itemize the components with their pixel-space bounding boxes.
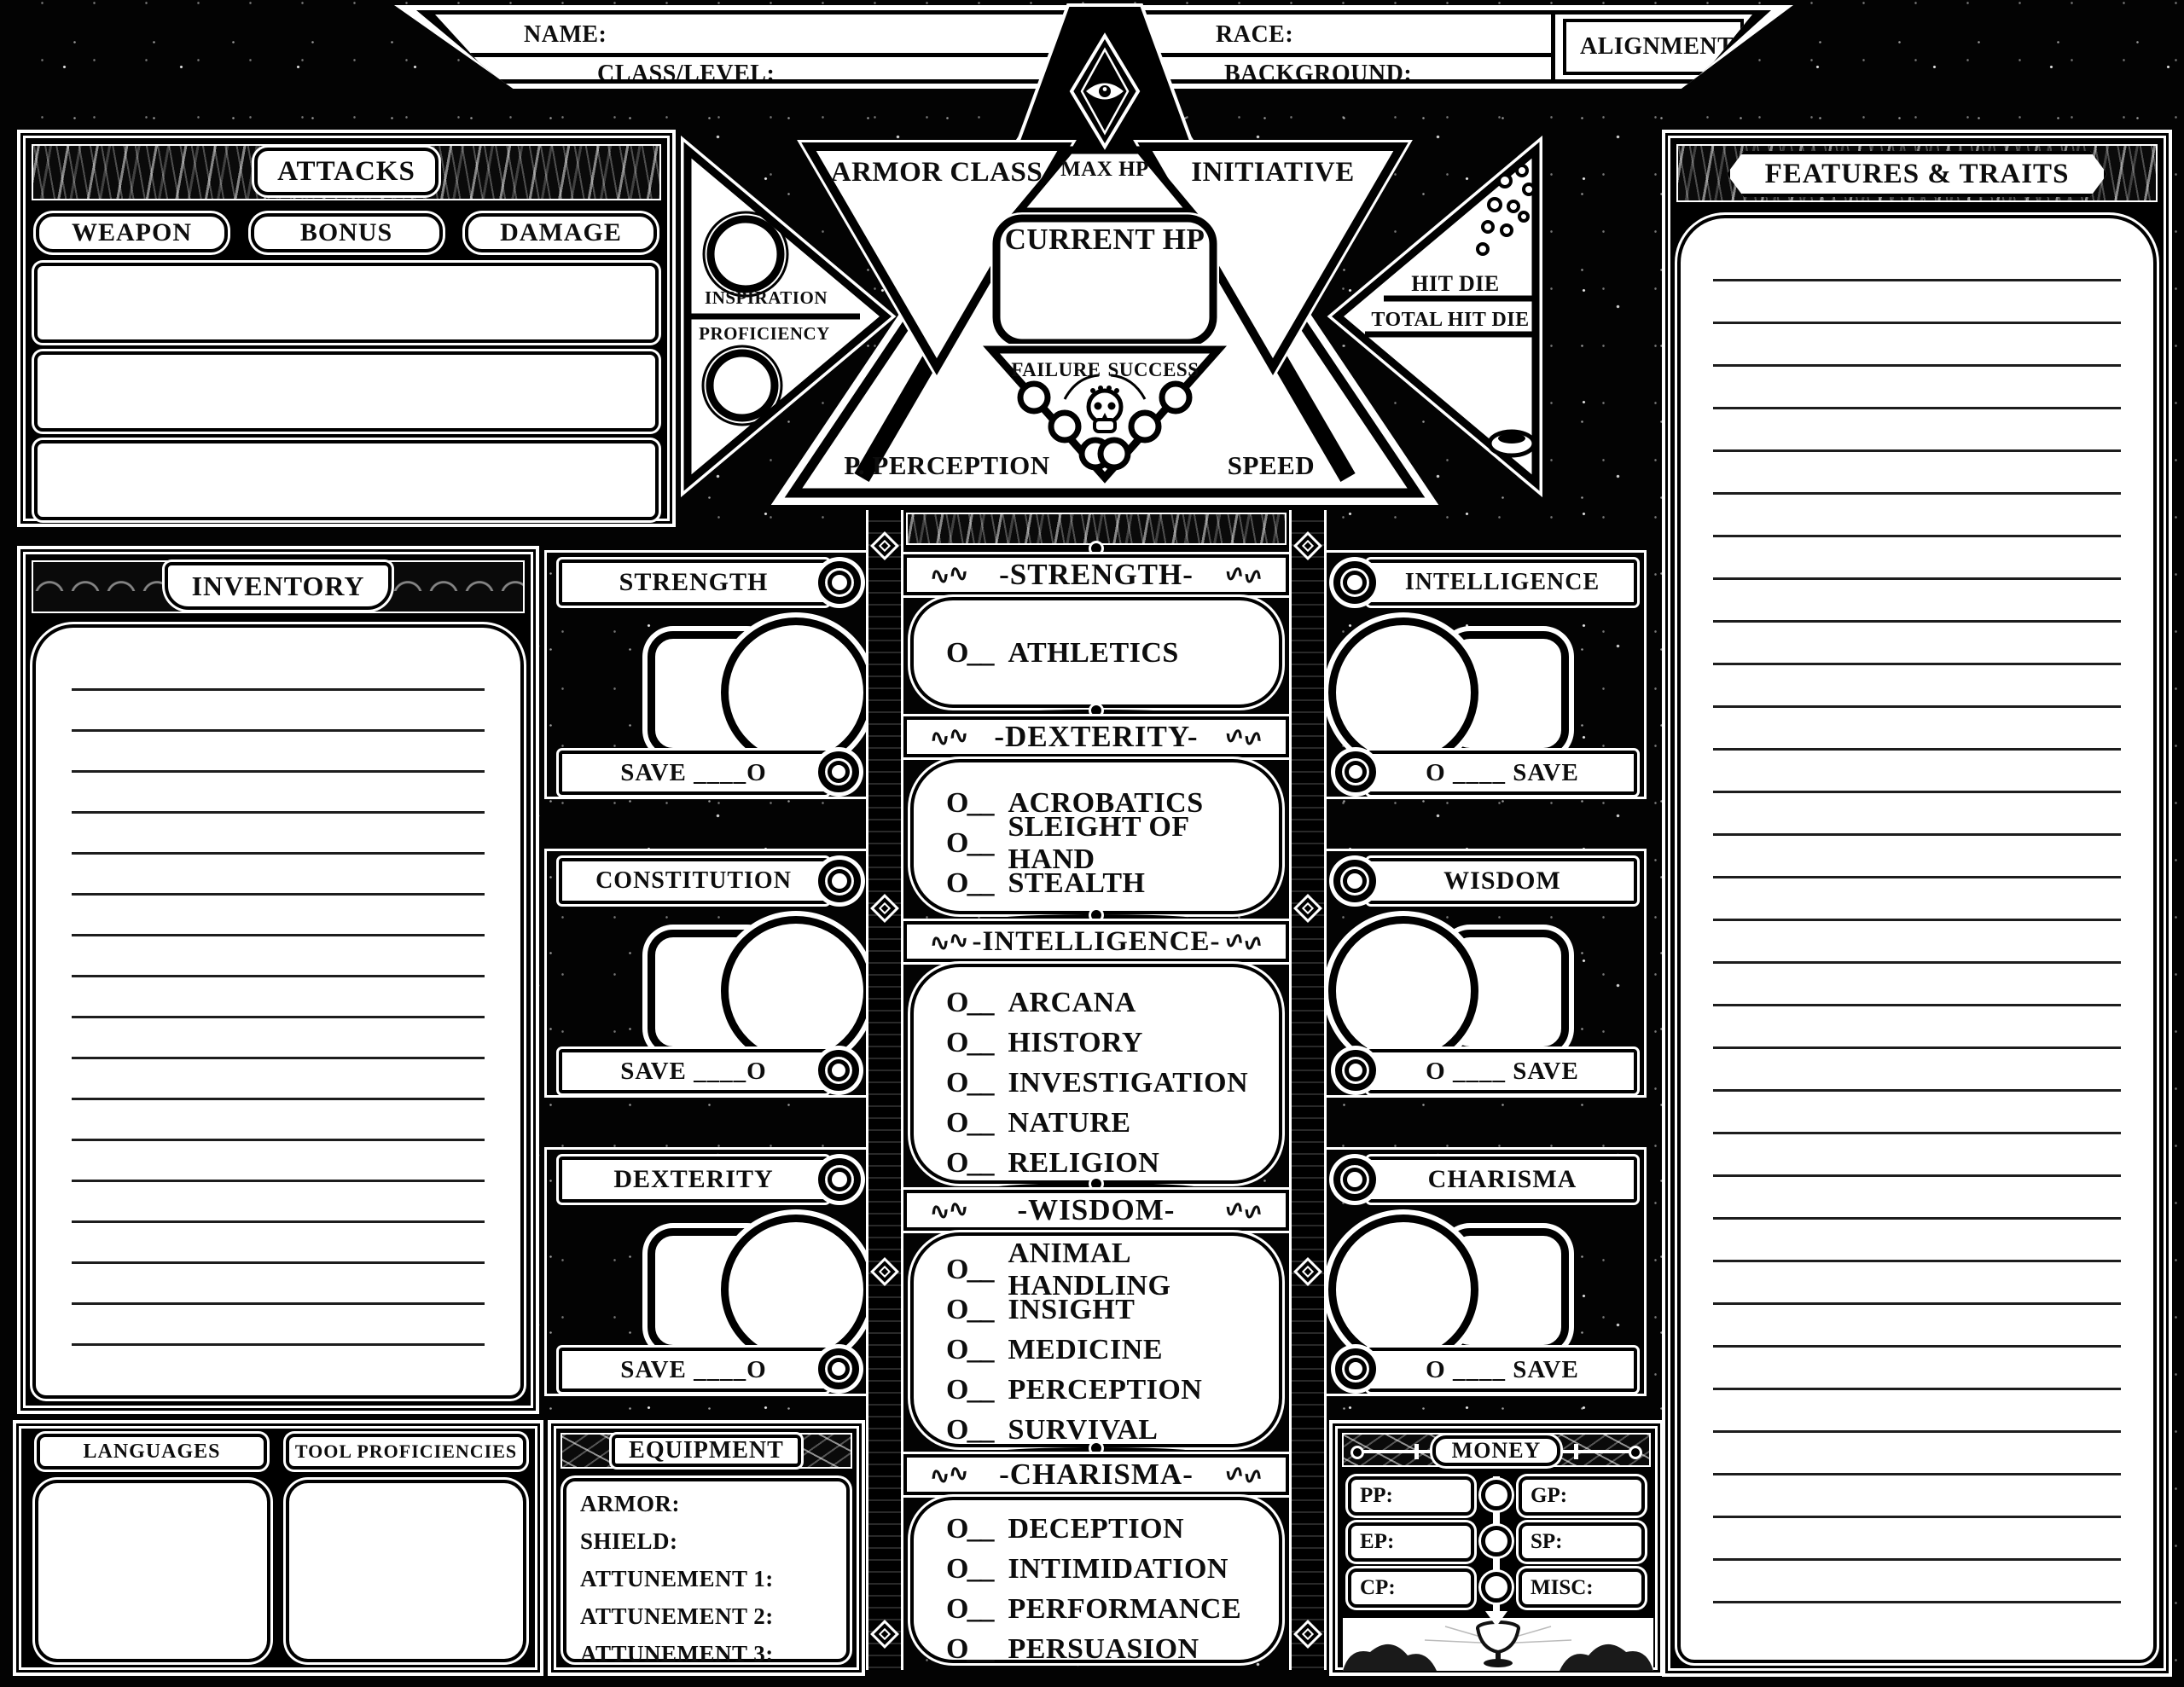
features-header-band: FEATURES & TRAITS xyxy=(1674,142,2160,205)
constitution-score-circle[interactable] xyxy=(721,916,871,1066)
skill-item[interactable]: O__DECEPTION xyxy=(946,1509,1279,1549)
coin-circle xyxy=(1481,1480,1512,1510)
skill-label: STEALTH xyxy=(1008,867,1145,900)
constitution-banner-ring[interactable] xyxy=(818,860,861,902)
skill-group-banner-wisdom: ∿∿ -WISDOM- ∿∿ xyxy=(903,1190,1289,1231)
leaf-flourish-icon: ∿∿ xyxy=(1223,558,1265,593)
passive-perception-label: P. PERCEPTION xyxy=(844,450,1049,480)
tools-title: TOOL PROFICIENCIES xyxy=(286,1434,526,1470)
coin-circle xyxy=(1481,1526,1512,1557)
skill-item[interactable]: O__SLEIGHT OF HAND xyxy=(946,823,1279,863)
skill-label: INSIGHT xyxy=(1008,1294,1135,1326)
charisma-score-circle[interactable] xyxy=(1328,1215,1478,1365)
skill-item[interactable]: O__ARCANA xyxy=(946,983,1279,1023)
skill-item[interactable]: O__MEDICINE xyxy=(946,1330,1279,1370)
money-field-sp[interactable]: SP: xyxy=(1519,1522,1645,1562)
constitution-save-ring[interactable] xyxy=(818,1050,859,1091)
leaf-flourish-icon: ∿∿ xyxy=(927,1458,969,1493)
skill-label: RELIGION xyxy=(1008,1147,1159,1180)
equipment-panel: EQUIPMENT ARMOR: SHIELD: ATTUNEMENT 1: A… xyxy=(548,1420,865,1676)
dexterity-banner-ring[interactable] xyxy=(818,1158,861,1201)
leaf-flourish-icon: ∿∿ xyxy=(927,558,969,593)
damage-column-header: DAMAGE xyxy=(465,213,657,252)
armor-class-label: ARMOR CLASS xyxy=(831,157,1043,188)
bonus-column-header: BONUS xyxy=(251,213,443,252)
skill-label: ATHLETICS xyxy=(1008,637,1178,670)
sword-icon xyxy=(1560,1450,1639,1453)
leaf-flourish-icon: ∿∿ xyxy=(927,1193,969,1228)
inventory-lines[interactable] xyxy=(72,650,485,1377)
skills-rail-right xyxy=(1289,510,1327,1670)
diamond-eye-icon xyxy=(870,1620,899,1649)
money-field-misc[interactable]: MISC: xyxy=(1519,1568,1645,1608)
diamond-eye-icon xyxy=(1293,1620,1322,1649)
total-hit-die-label: TOTAL HIT DIE xyxy=(1371,309,1529,331)
skill-label: NATURE xyxy=(1008,1107,1130,1139)
skill-group-title: -CHARISMA- xyxy=(999,1458,1194,1492)
skill-item[interactable]: O__PERCEPTION xyxy=(946,1370,1279,1410)
charisma-save-banner: O ____ SAVE xyxy=(1368,1348,1637,1392)
leaf-flourish-icon: ∿∿ xyxy=(1223,1458,1265,1493)
skill-label: PERFORMANCE xyxy=(1008,1593,1241,1626)
strength-banner-ring[interactable] xyxy=(818,561,861,604)
strength-save-ring[interactable] xyxy=(818,751,859,792)
languages-title: LANGUAGES xyxy=(37,1434,267,1470)
ability-intelligence: INTELLIGENCE O ____ SAVE xyxy=(1321,550,1647,799)
skill-item[interactable]: O__PERFORMANCE xyxy=(946,1589,1279,1629)
intelligence-score-circle[interactable] xyxy=(1328,617,1478,768)
failure-label: FAILURE xyxy=(1011,359,1101,380)
ability-constitution: CONSTITUTION SAVE ____O xyxy=(544,849,870,1098)
skill-group-title: -STRENGTH- xyxy=(999,558,1194,592)
skill-group-panel-intelligence: O__ARCANA O__HISTORY O__INVESTIGATION O_… xyxy=(910,964,1282,1184)
coin-circle xyxy=(1481,1572,1512,1603)
equipment-paper: ARMOR: SHIELD: ATTUNEMENT 1: ATTUNEMENT … xyxy=(563,1478,850,1662)
skill-group-panel-wisdom: O__ANIMAL HANDLING O__INSIGHT O__MEDICIN… xyxy=(910,1232,1282,1447)
strength-banner: STRENGTH xyxy=(559,559,828,606)
skill-item[interactable]: O__HISTORY xyxy=(946,1023,1279,1063)
leaf-flourish-icon: ∿∿ xyxy=(1223,925,1265,959)
languages-area[interactable] xyxy=(35,1480,270,1662)
death-save-success-circle-3[interactable] xyxy=(1101,440,1128,467)
equipment-header-band: EQUIPMENT xyxy=(558,1430,855,1471)
features-panel: FEATURES & TRAITS xyxy=(1662,130,2172,1677)
attacks-title-text: ATTACKS xyxy=(277,156,415,188)
dice-cup-icon xyxy=(1490,432,1534,455)
vitals-emblem: ARMOR CLASS INITIATIVE MAX HP CURRENT HP… xyxy=(657,0,1561,512)
wisdom-banner-ring[interactable] xyxy=(1333,860,1376,902)
intelligence-save-banner: O ____ SAVE xyxy=(1368,751,1637,795)
money-header-band: MONEY xyxy=(1339,1430,1653,1470)
attack-row-3[interactable] xyxy=(34,440,659,520)
wisdom-save-banner: O ____ SAVE xyxy=(1368,1049,1637,1093)
intelligence-banner-ring[interactable] xyxy=(1333,561,1376,604)
dexterity-banner: DEXTERITY xyxy=(559,1157,828,1203)
dexterity-score-circle[interactable] xyxy=(721,1215,871,1365)
equipment-field-attunement-2[interactable]: ATTUNEMENT 2: xyxy=(566,1597,846,1635)
skill-group-banner-charisma: ∿∿ -CHARISMA- ∿∿ xyxy=(903,1454,1289,1495)
success-label: SUCCESS xyxy=(1107,359,1199,380)
name-label: NAME: xyxy=(524,21,607,49)
inventory-title: INVENTORY xyxy=(165,562,392,610)
wisdom-save-ring[interactable] xyxy=(1335,1050,1376,1091)
money-title: MONEY xyxy=(1432,1435,1560,1466)
skill-group-banner-dexterity: ∿∿ -DEXTERITY- ∿∿ xyxy=(903,716,1289,757)
money-panel: MONEY PP: GP: EP: SP: CP: MISC: xyxy=(1329,1420,1664,1676)
equipment-field-armor[interactable]: ARMOR: xyxy=(566,1485,846,1522)
leaf-flourish-icon: ∿∿ xyxy=(1223,720,1265,755)
leaf-flourish-icon: ∿∿ xyxy=(927,720,969,755)
inventory-paper xyxy=(32,624,524,1399)
skill-item[interactable]: O__PERSUASION xyxy=(946,1629,1279,1669)
speed-label: SPEED xyxy=(1228,450,1315,480)
max-hp-label: MAX HP xyxy=(1060,158,1149,181)
dexterity-save-ring[interactable] xyxy=(818,1348,859,1389)
skill-item[interactable]: O__INTIMIDATION xyxy=(946,1549,1279,1589)
money-field-gp[interactable]: GP: xyxy=(1519,1476,1645,1516)
attacks-header-band: ATTACKS xyxy=(29,142,664,203)
inspiration-label: INSPIRATION xyxy=(705,287,828,308)
skill-group-panel-charisma: O__DECEPTION O__INTIMIDATION O__PERFORMA… xyxy=(910,1497,1282,1663)
features-lines[interactable] xyxy=(1713,239,2121,1643)
diamond-eye-icon xyxy=(870,1257,899,1286)
skill-label: HISTORY xyxy=(1008,1027,1143,1059)
features-paper xyxy=(1677,215,2157,1663)
strength-save-banner: SAVE ____O xyxy=(559,751,828,795)
attacks-panel: ATTACKS WEAPON BONUS DAMAGE xyxy=(17,130,676,527)
wisdom-banner: WISDOM xyxy=(1368,858,1637,904)
character-sheet: NAME: CLASS/LEVEL: RACE: BACKGROUND: ALI… xyxy=(0,0,2184,1687)
death-save-success-circle-1[interactable] xyxy=(1162,384,1189,411)
diamond-eye-icon xyxy=(870,894,899,923)
skill-item[interactable]: O__SURVIVAL xyxy=(946,1410,1279,1450)
skill-label: SURVIVAL xyxy=(1008,1414,1158,1446)
tools-area[interactable] xyxy=(286,1480,526,1662)
diamond-eye-icon xyxy=(870,531,899,560)
alignment-box: ALIGNMENT: xyxy=(1563,19,1744,75)
skill-label: DECEPTION xyxy=(1008,1513,1184,1545)
current-hp-label: CURRENT HP xyxy=(1005,223,1205,256)
skill-group-banner-intelligence: ∿∿ -INTELLIGENCE- ∿∿ xyxy=(903,921,1289,962)
initiative-label: INITIATIVE xyxy=(1191,157,1354,188)
proficiency-circle[interactable] xyxy=(710,353,775,418)
skills-rail-left xyxy=(866,510,903,1670)
ability-charisma: CHARISMA O ____ SAVE xyxy=(1321,1147,1647,1396)
equipment-title: EQUIPMENT xyxy=(612,1435,801,1467)
charisma-banner: CHARISMA xyxy=(1368,1157,1637,1203)
languages-tools-panel: LANGUAGES TOOL PROFICIENCIES xyxy=(13,1420,543,1676)
inventory-panel: INVENTORY xyxy=(17,546,539,1414)
ability-dexterity: DEXTERITY SAVE ____O xyxy=(544,1147,870,1396)
attacks-title: ATTACKS xyxy=(254,148,439,195)
charisma-banner-ring[interactable] xyxy=(1333,1158,1376,1201)
strength-score-circle[interactable] xyxy=(721,617,871,768)
attacks-columns: WEAPON BONUS DAMAGE xyxy=(36,213,657,252)
hit-die-label: HIT DIE xyxy=(1411,271,1499,296)
skill-label: MEDICINE xyxy=(1008,1334,1163,1366)
skill-label: INVESTIGATION xyxy=(1008,1067,1248,1099)
diamond-eye-icon xyxy=(1293,894,1322,923)
proficiency-label: PROFICIENCY xyxy=(699,323,830,344)
skill-label: INTIMIDATION xyxy=(1008,1553,1228,1586)
death-save-success-circle-2[interactable] xyxy=(1131,413,1159,440)
equipment-field-attunement-1[interactable]: ATTUNEMENT 1: xyxy=(566,1560,846,1597)
wisdom-score-circle[interactable] xyxy=(1328,916,1478,1066)
skill-group-panel-dexterity: O__ACROBATICS O__SLEIGHT OF HAND O__STEA… xyxy=(910,759,1282,914)
skill-item[interactable]: O__ANIMAL HANDLING xyxy=(946,1249,1279,1290)
diamond-eye-icon xyxy=(1293,531,1322,560)
money-field-ep[interactable]: EP: xyxy=(1348,1522,1474,1562)
death-save-failure-circle-2[interactable] xyxy=(1051,413,1078,440)
constitution-save-banner: SAVE ____O xyxy=(559,1049,828,1093)
skill-group-banner-strength: ∿∿ -STRENGTH- ∿∿ xyxy=(903,554,1289,595)
dexterity-save-banner: SAVE ____O xyxy=(559,1348,828,1392)
intelligence-save-ring[interactable] xyxy=(1335,751,1376,792)
alignment-label: ALIGNMENT: xyxy=(1580,33,1740,61)
money-field-cp[interactable]: CP: xyxy=(1348,1568,1474,1608)
equipment-field-shield[interactable]: SHIELD: xyxy=(566,1522,846,1560)
skill-label: PERCEPTION xyxy=(1008,1374,1202,1406)
equipment-field-attunement-3[interactable]: ATTUNEMENT 3: xyxy=(566,1635,846,1673)
attack-row-1[interactable] xyxy=(34,263,659,343)
attack-row-2[interactable] xyxy=(34,351,659,432)
diamond-eye-icon xyxy=(1293,1257,1322,1286)
skill-item[interactable]: O__RELIGION xyxy=(946,1143,1279,1183)
skill-label: ANIMAL HANDLING xyxy=(1008,1238,1279,1302)
skill-group-title: -DEXTERITY- xyxy=(994,720,1198,754)
weapon-column-header: WEAPON xyxy=(36,213,228,252)
inventory-header-band: INVENTORY xyxy=(29,558,527,616)
constitution-banner: CONSTITUTION xyxy=(559,858,828,904)
charisma-save-ring[interactable] xyxy=(1335,1348,1376,1389)
skill-label: SLEIGHT OF HAND xyxy=(1008,811,1279,876)
skill-item[interactable]: O__INVESTIGATION xyxy=(946,1063,1279,1103)
skill-label: ARCANA xyxy=(1008,987,1136,1019)
skill-group-title: -INTELLIGENCE- xyxy=(973,926,1221,958)
skill-item[interactable]: O__NATURE xyxy=(946,1103,1279,1143)
skill-group-title: -WISDOM- xyxy=(1018,1193,1176,1227)
sword-icon xyxy=(1354,1450,1432,1453)
ability-wisdom: WISDOM O ____ SAVE xyxy=(1321,849,1647,1098)
inspiration-circle[interactable] xyxy=(711,219,781,289)
leaf-flourish-icon: ∿∿ xyxy=(1223,1193,1265,1228)
money-field-pp[interactable]: PP: xyxy=(1348,1476,1474,1516)
ability-strength: STRENGTH SAVE ____O xyxy=(544,550,870,799)
death-save-failure-circle-1[interactable] xyxy=(1020,384,1048,411)
features-title: FEATURES & TRAITS xyxy=(1727,151,2107,197)
intelligence-banner: INTELLIGENCE xyxy=(1368,559,1637,606)
skill-item[interactable]: O__ATHLETICS xyxy=(946,633,1279,673)
skill-label: PERSUASION xyxy=(1008,1633,1199,1666)
leaf-flourish-icon: ∿∿ xyxy=(927,925,969,959)
skill-group-panel-strength: O__ATHLETICS xyxy=(910,597,1282,708)
